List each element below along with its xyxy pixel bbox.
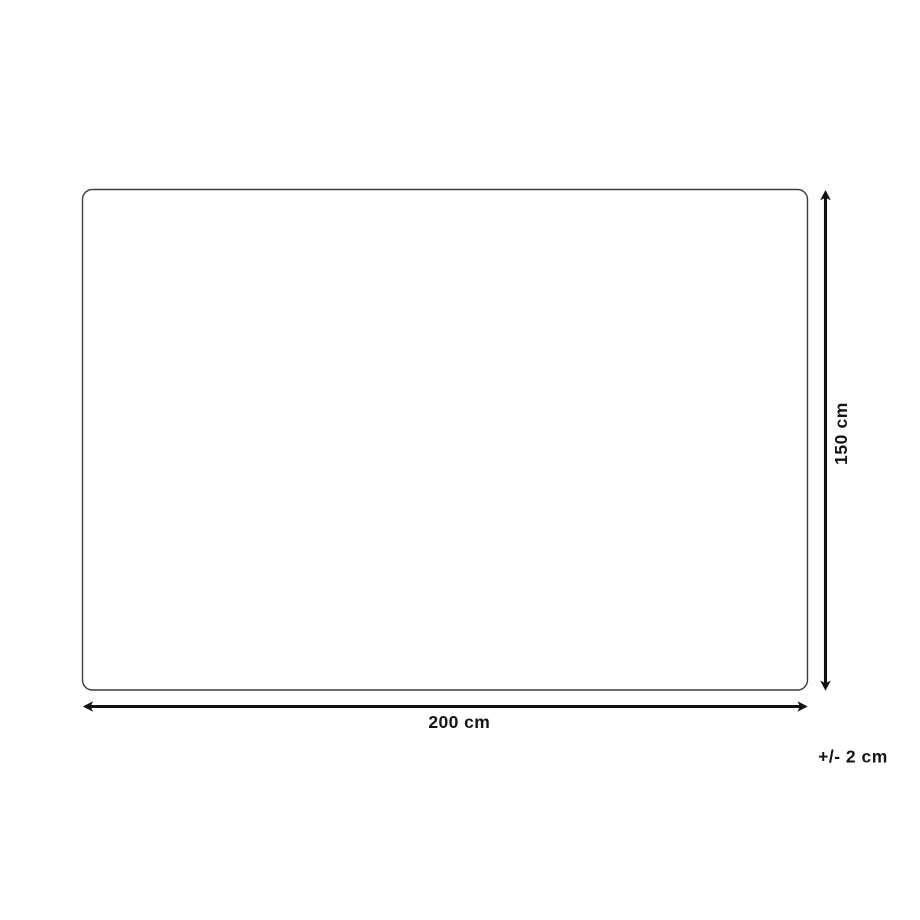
svg-text:200 cm: 200 cm	[428, 712, 490, 732]
svg-text:150 cm: 150 cm	[831, 402, 851, 465]
svg-text:+/- 2 cm: +/- 2 cm	[818, 747, 888, 767]
